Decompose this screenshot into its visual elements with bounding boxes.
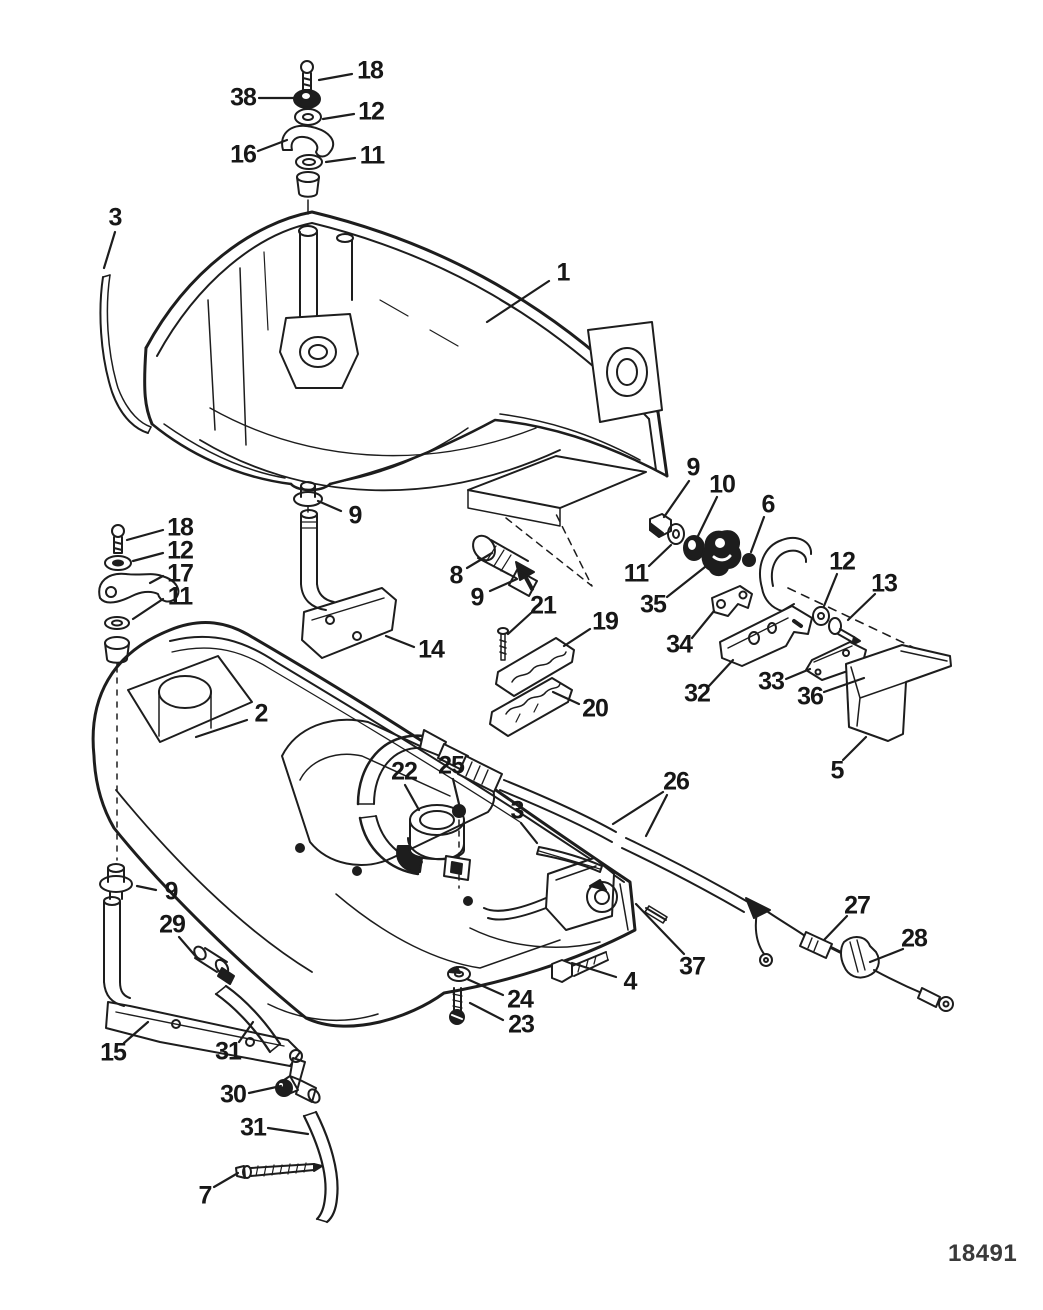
callout-9-right: 9 <box>687 456 700 481</box>
callout-9-center: 9 <box>349 504 362 529</box>
callout-38: 38 <box>230 86 256 111</box>
callout-11-top: 11 <box>360 144 384 169</box>
callout-30: 30 <box>220 1083 246 1108</box>
callout-10: 10 <box>709 473 735 498</box>
callout-9-bottom: 9 <box>165 880 178 905</box>
callout-33: 33 <box>758 670 784 695</box>
callout-9-ferrule: 9 <box>471 586 484 611</box>
callout-27: 27 <box>844 894 870 919</box>
callout-24: 24 <box>507 988 533 1013</box>
callout-6: 6 <box>762 493 775 518</box>
callout-12-right: 12 <box>829 550 855 575</box>
callout-18-top: 18 <box>357 59 383 84</box>
callout-2: 2 <box>255 702 268 727</box>
callout-15: 15 <box>100 1041 126 1066</box>
callout-5: 5 <box>831 759 844 784</box>
callout-19: 19 <box>592 610 618 635</box>
upper-cowl-drawing <box>145 200 667 586</box>
callout-23: 23 <box>508 1013 534 1038</box>
callout-26: 26 <box>663 770 689 795</box>
callout-3-left: 3 <box>109 206 122 231</box>
callout-31-upper: 31 <box>215 1040 241 1065</box>
callout-11-right: 11 <box>624 562 648 587</box>
callout-3-center: 3 <box>511 799 524 824</box>
callout-22: 22 <box>391 760 417 785</box>
callout-20: 20 <box>582 697 608 722</box>
callout-12-top: 12 <box>358 100 384 125</box>
callout-1: 1 <box>557 261 570 286</box>
callout-34: 34 <box>666 633 692 658</box>
grommet-tube-tray-14-drawing <box>294 482 396 658</box>
callout-11-left: 11 <box>168 585 192 610</box>
exploded-parts-diagram: 1838121611319181217111489211920910113563… <box>0 0 1043 1310</box>
callout-8: 8 <box>450 564 463 589</box>
callout-29: 29 <box>159 913 185 938</box>
callout-35: 35 <box>640 593 666 618</box>
callout-14: 14 <box>418 638 444 663</box>
top-fastener-column-drawing <box>282 61 333 197</box>
drawing-number: 18491 <box>948 1242 1017 1266</box>
clamp-blocks-drawing <box>490 628 574 736</box>
callout-32: 32 <box>684 682 710 707</box>
primer-pump-drawing <box>358 730 502 888</box>
callout-21: 21 <box>530 594 556 619</box>
weatherstrip-left-drawing <box>100 275 151 433</box>
callout-31-lower: 31 <box>240 1116 266 1141</box>
callout-28: 28 <box>901 927 927 952</box>
callout-13: 13 <box>871 572 897 597</box>
callout-36: 36 <box>797 685 823 710</box>
callout-7: 7 <box>199 1184 212 1209</box>
callout-37: 37 <box>679 955 705 980</box>
callout-4: 4 <box>624 970 637 995</box>
callout-25: 25 <box>438 754 464 779</box>
callout-16: 16 <box>230 143 256 168</box>
diagram-line-art <box>0 0 1043 1310</box>
